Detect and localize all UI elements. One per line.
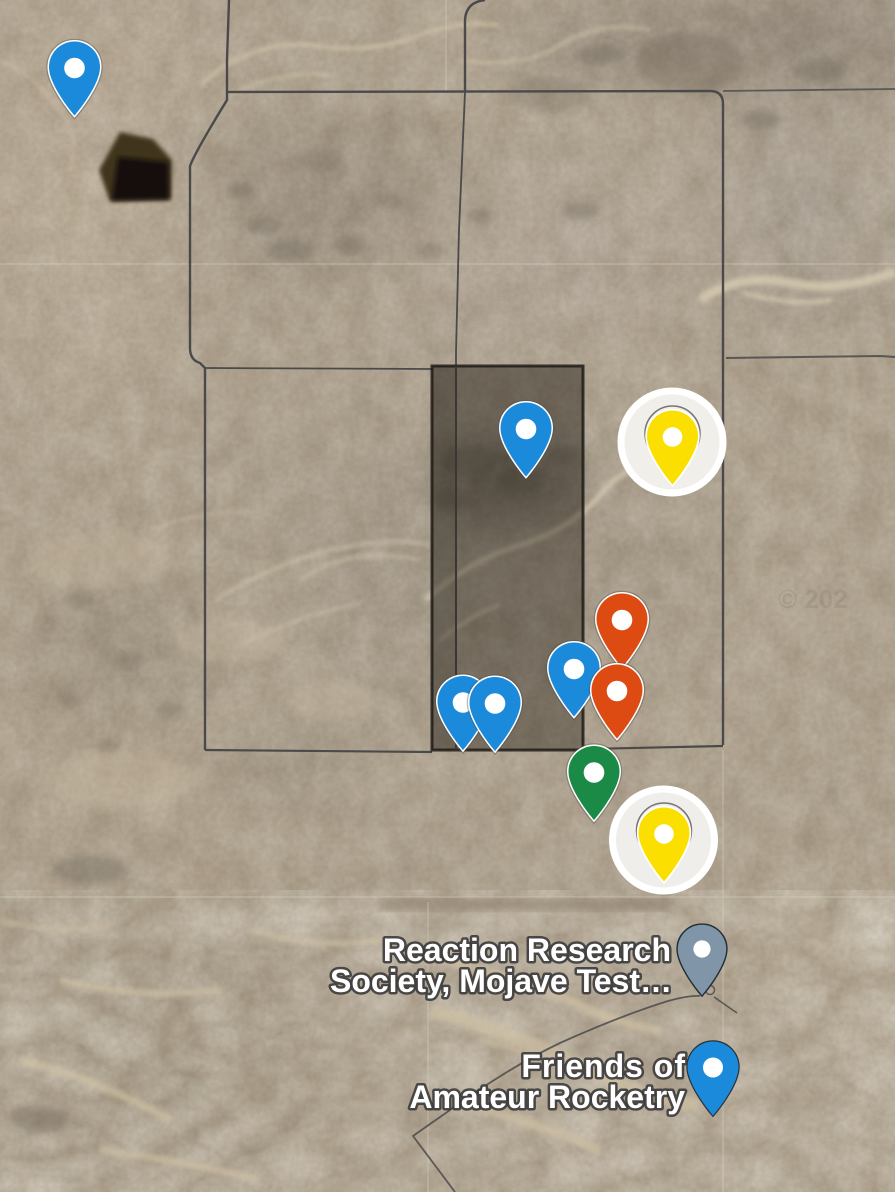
- svg-text:© 202: © 202: [778, 584, 848, 614]
- svg-text:Amateur Rocketry: Amateur Rocketry: [409, 1079, 685, 1115]
- svg-text:Society, Mojave Test…: Society, Mojave Test…: [330, 963, 672, 999]
